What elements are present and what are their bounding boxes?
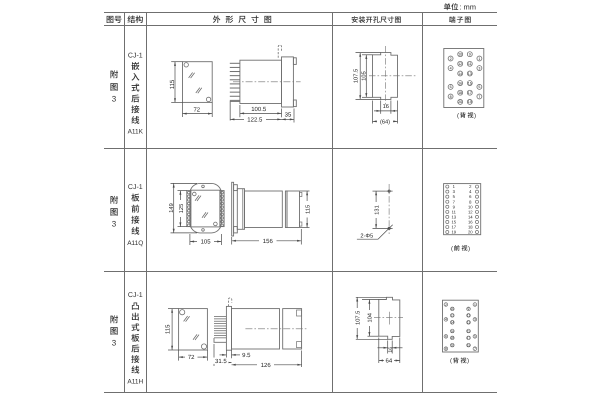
svg-text:107.5: 107.5 [355, 311, 361, 325]
svg-text:9.5: 9.5 [242, 352, 251, 359]
svg-text:16: 16 [458, 81, 462, 85]
svg-text:10: 10 [458, 53, 462, 57]
svg-text:7: 7 [478, 95, 480, 99]
svg-text:31.5: 31.5 [215, 358, 227, 365]
svg-text:16: 16 [383, 104, 389, 110]
svg-text:19: 19 [467, 343, 471, 347]
svg-text:8: 8 [450, 95, 452, 99]
svg-text:3: 3 [112, 95, 117, 104]
svg-text:A11K: A11K [128, 129, 144, 136]
svg-text:12: 12 [458, 62, 462, 66]
svg-text:100.5: 100.5 [251, 106, 267, 113]
svg-text:1: 1 [478, 57, 480, 61]
svg-text:13: 13 [467, 321, 471, 325]
svg-text:7: 7 [474, 347, 476, 351]
svg-text:72: 72 [193, 106, 200, 113]
svg-text:3: 3 [474, 318, 476, 322]
svg-text:18: 18 [450, 336, 454, 340]
svg-text:15: 15 [468, 81, 472, 85]
svg-text:2: 2 [450, 57, 452, 61]
svg-text:): ) [467, 358, 469, 365]
svg-text:A11H: A11H [127, 379, 143, 386]
svg-text:35: 35 [285, 112, 292, 119]
svg-text:17: 17 [468, 91, 472, 95]
svg-text:105: 105 [361, 71, 367, 81]
svg-text:16: 16 [388, 347, 394, 353]
svg-text:2-Φ5: 2-Φ5 [360, 233, 373, 239]
svg-text:4: 4 [450, 66, 452, 70]
svg-text:13: 13 [468, 72, 472, 76]
svg-text:CJ-1: CJ-1 [128, 53, 143, 60]
svg-text:115: 115 [169, 79, 176, 89]
svg-text:126: 126 [261, 362, 272, 369]
svg-text:105: 105 [201, 239, 212, 246]
svg-text:149: 149 [169, 203, 175, 213]
svg-text:122.5: 122.5 [247, 117, 263, 124]
svg-text:17: 17 [467, 336, 471, 340]
svg-text:115: 115 [165, 324, 172, 334]
svg-text:1: 1 [474, 303, 476, 307]
svg-text:3: 3 [478, 66, 480, 70]
svg-text:20: 20 [458, 100, 462, 104]
svg-text:104: 104 [368, 313, 374, 323]
svg-text:6: 6 [450, 85, 452, 89]
svg-text:11: 11 [468, 62, 472, 66]
svg-text:4: 4 [445, 318, 447, 322]
svg-text:3: 3 [112, 220, 117, 229]
svg-text:5: 5 [478, 85, 480, 89]
svg-text:107.5: 107.5 [354, 69, 360, 83]
svg-text:115: 115 [305, 205, 311, 214]
svg-text:6: 6 [445, 335, 447, 339]
svg-text:(: ( [457, 113, 460, 120]
svg-text:): ) [474, 113, 476, 120]
svg-text:14: 14 [458, 72, 462, 76]
svg-text:(: ( [450, 358, 453, 365]
svg-text::: : [460, 2, 462, 11]
svg-text:18: 18 [458, 91, 462, 95]
svg-text:9: 9 [468, 307, 470, 311]
svg-text:20: 20 [450, 343, 454, 347]
svg-text:CJ-1: CJ-1 [128, 292, 143, 299]
svg-text:3: 3 [112, 339, 117, 348]
svg-text:): ) [468, 245, 470, 252]
svg-text:20: 20 [468, 230, 473, 235]
svg-text:16: 16 [450, 329, 454, 333]
svg-text:mm: mm [464, 2, 477, 11]
svg-text:64: 64 [386, 357, 393, 364]
svg-text:(64): (64) [380, 118, 390, 125]
svg-text:125: 125 [179, 204, 185, 214]
svg-text:2: 2 [445, 303, 447, 307]
svg-text:11: 11 [467, 314, 471, 318]
svg-text:131: 131 [374, 205, 380, 215]
svg-text:9: 9 [469, 53, 471, 57]
svg-text:156: 156 [263, 238, 274, 245]
svg-text:14: 14 [450, 321, 454, 325]
svg-text:A11Q: A11Q [127, 240, 143, 247]
svg-text:19: 19 [468, 100, 472, 104]
svg-text:CJ-1: CJ-1 [128, 184, 143, 191]
svg-text:19: 19 [451, 230, 456, 235]
svg-text:8: 8 [445, 347, 447, 351]
svg-text:(: ( [451, 245, 454, 252]
svg-text:15: 15 [467, 329, 471, 333]
svg-text:12: 12 [450, 314, 454, 318]
svg-text:72: 72 [188, 354, 195, 361]
svg-text:10: 10 [450, 307, 454, 311]
svg-text:5: 5 [474, 335, 476, 339]
